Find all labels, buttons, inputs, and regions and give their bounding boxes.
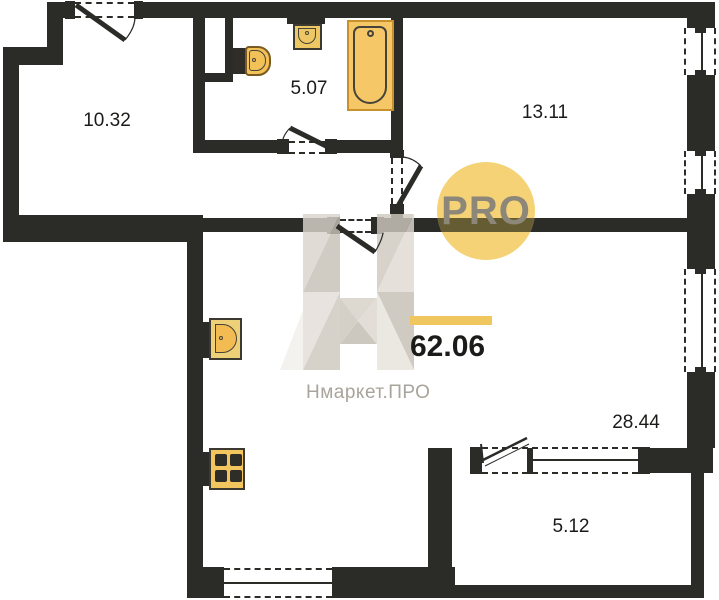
door-swing-layer [0,0,719,600]
brand-name-label: Нмаркет.ПРО [306,382,430,404]
room-area-label-balcony: 5.12 [532,516,610,538]
floor-plan: PRO 62.06 Нмаркет.ПРО 10.32 5.07 13.11 2… [0,0,719,600]
living-door-leaf [337,226,375,252]
room-area-label-hallway: 10.32 [60,110,154,132]
balcony-sash-jamb [481,444,483,463]
bedroom-door-arc [403,157,421,166]
bathroom-door-arc [281,128,290,148]
total-area-label: 62.06 [410,330,485,364]
bathroom-door-leaf [290,128,330,148]
total-area-underline [410,316,492,325]
room-area-label-living: 28.44 [589,412,683,434]
living-door-arc [375,233,383,252]
room-area-label-bedroom: 13.11 [498,102,592,124]
entrance-door-leaf [76,5,125,40]
room-area-label-bathroom: 5.07 [270,78,348,100]
entrance-door-arc [125,17,135,40]
pro-badge-circle: PRO [437,162,535,260]
bedroom-door-leaf [398,166,421,206]
balcony-sash-open [483,438,527,460]
pro-badge-text: PRO [437,162,535,260]
